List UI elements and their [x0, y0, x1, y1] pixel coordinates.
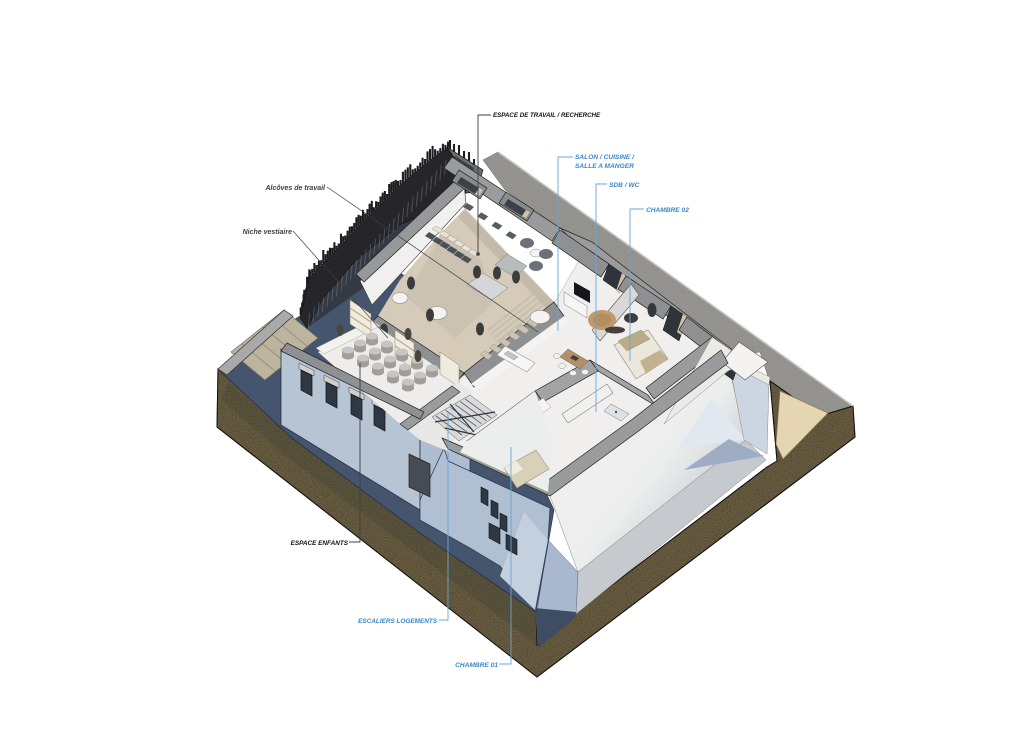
svg-text:SALON / CUISINE /: SALON / CUISINE / — [575, 154, 635, 161]
svg-text:ESPACE ENFANTS: ESPACE ENFANTS — [291, 540, 349, 547]
svg-text:CHAMBRE 02: CHAMBRE 02 — [646, 207, 689, 214]
svg-text:CHAMBRE 01: CHAMBRE 01 — [455, 662, 498, 669]
svg-text:Alcôves de travail: Alcôves de travail — [264, 185, 326, 192]
svg-text:ESCALIERS LOGEMENTS: ESCALIERS LOGEMENTS — [358, 618, 438, 625]
svg-text:SDB / WC: SDB / WC — [609, 182, 640, 189]
svg-text:Niche vestiaire: Niche vestiaire — [243, 229, 293, 236]
svg-text:SALLE A MANGER: SALLE A MANGER — [575, 163, 634, 170]
svg-text:ESPACE DE TRAVAIL / RECHERCHE: ESPACE DE TRAVAIL / RECHERCHE — [493, 112, 601, 119]
